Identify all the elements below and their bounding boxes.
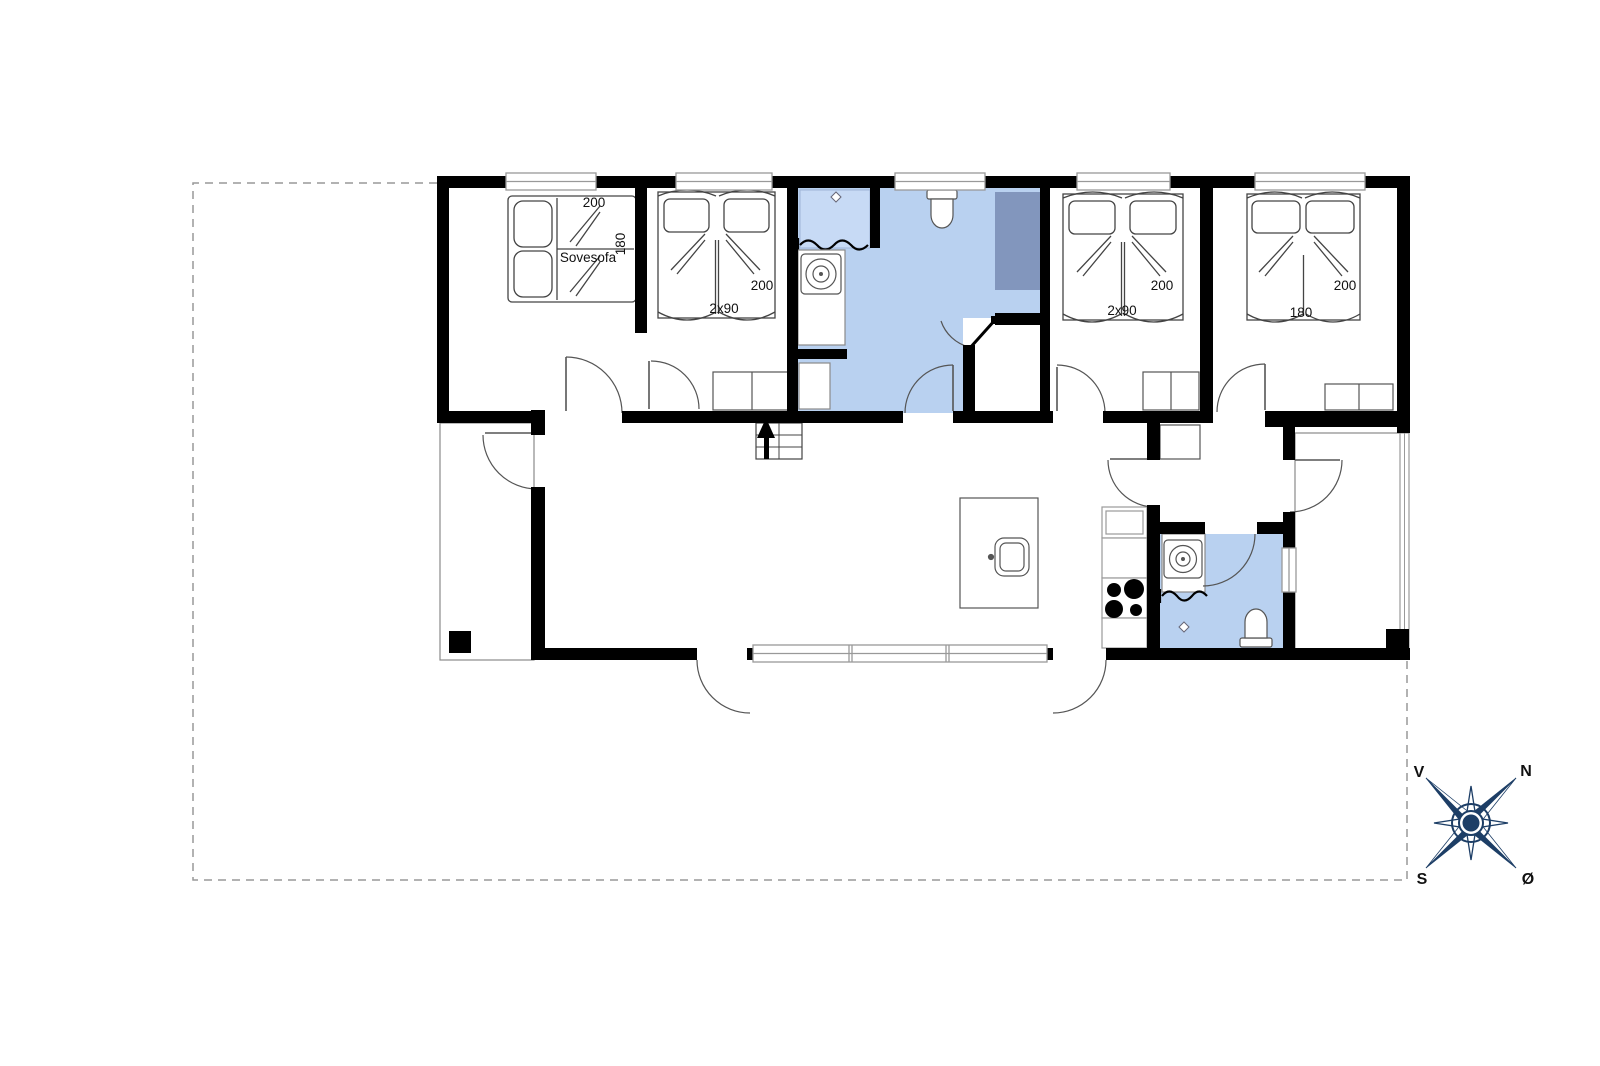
entrance-terrace-outline [440,423,534,660]
bedroom4-length-label: 200 [1334,278,1357,293]
bedroom3-beds-label: 2x90 [1107,303,1136,318]
door-kitchen-hall [1108,459,1155,507]
bedroom4-width-label: 180 [1290,305,1313,320]
floor-plan-page: 200 180 Sovesofa 200 2x90 200 2x90 200 1… [0,0,1600,1066]
sovesofa-label: Sovesofa [560,250,617,265]
window-bedroom-4 [1255,173,1365,190]
kitchen-counter [1102,507,1147,648]
door-bedroom-4 [1217,364,1265,412]
bedroom3-length-label: 200 [1151,278,1174,293]
east-porch-outline [1295,433,1406,650]
compass-rose-icon: V N S Ø [1414,763,1535,888]
window-bathroom-1 [895,173,985,190]
window-bedroom-1 [506,173,596,190]
sauna-box [995,192,1040,290]
compass-south-label: S [1417,871,1428,888]
bedroom2-length-label: 200 [751,278,774,293]
window-bathroom-2 [1282,548,1296,592]
compass-east-label: Ø [1522,871,1534,888]
hall-cabinet [1160,425,1200,459]
window-bedroom-2 [676,173,772,190]
bath-1-cabinet [799,363,830,409]
bedroom2-beds-label: 2x90 [709,301,738,316]
floor-plan-drawing: 200 180 Sovesofa 200 2x90 200 2x90 200 1… [0,0,1600,1066]
bedroom1-width-label: 200 [583,195,606,210]
washbasin-2-icon [1164,540,1202,578]
terrace-pillar [449,631,471,653]
compass-north-label: N [1520,763,1532,780]
door-bedroom-1 [566,357,622,413]
door-terrace-right [1053,660,1106,713]
door-bedroom-2 [649,361,699,409]
porch-pillar [1386,629,1409,650]
bathroom-2 [1160,534,1283,648]
window-living-room [753,645,1047,662]
compass-west-label: V [1414,764,1425,781]
window-bedroom-3 [1077,173,1170,190]
double-bed-180-icon [1247,192,1360,322]
door-bedroom-3 [1057,365,1105,413]
washbasin-1-icon [801,254,841,294]
wardrobe-bedroom-2 [713,372,791,410]
door-terrace-left [697,660,750,713]
stairs [756,418,802,459]
wardrobe-bedroom-3 [1143,372,1199,410]
wardrobe-bedroom-4 [1325,384,1393,410]
kitchen-island [960,498,1038,608]
